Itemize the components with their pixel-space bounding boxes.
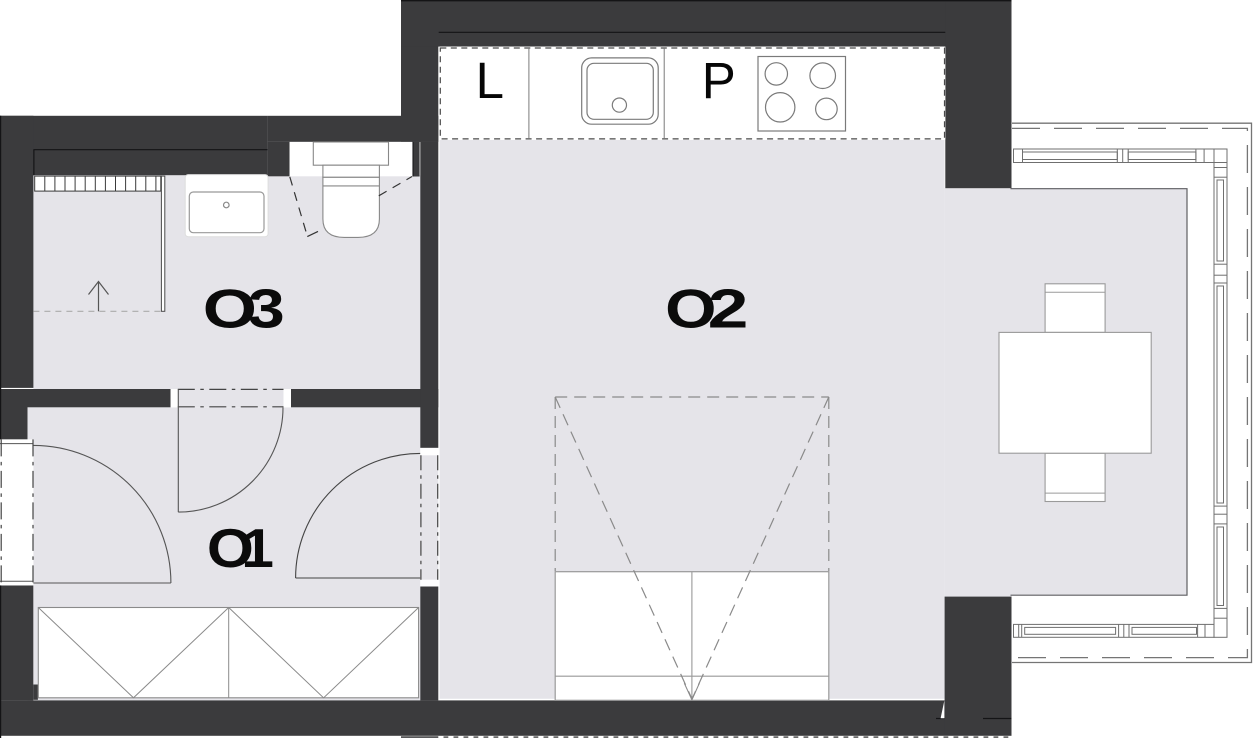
svg-text:1: 1 xyxy=(241,518,274,579)
svg-text:L: L xyxy=(476,52,504,109)
svg-text:2: 2 xyxy=(708,278,749,339)
svg-text:P: P xyxy=(702,52,736,109)
svg-text:3: 3 xyxy=(248,278,285,339)
